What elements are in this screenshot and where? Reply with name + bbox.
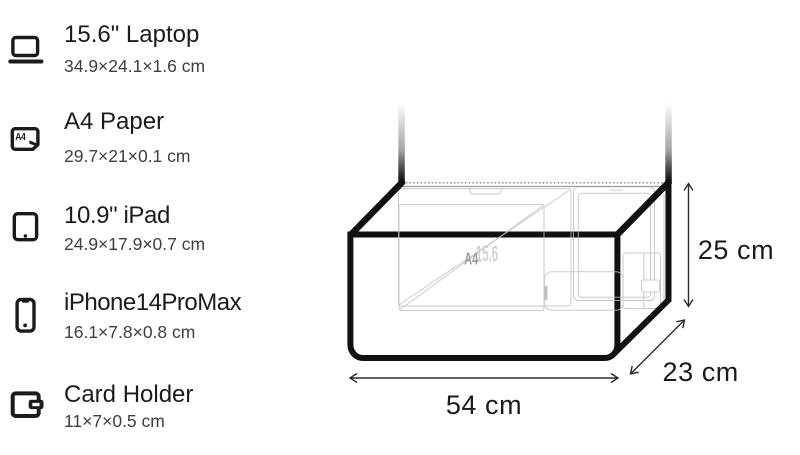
svg-text:A4: A4 [464, 250, 479, 269]
svg-text:25 cm: 25 cm [698, 235, 774, 265]
svg-text:54 cm: 54 cm [446, 390, 522, 420]
svg-text:23 cm: 23 cm [663, 357, 739, 387]
svg-text:15.6: 15.6 [476, 241, 498, 266]
